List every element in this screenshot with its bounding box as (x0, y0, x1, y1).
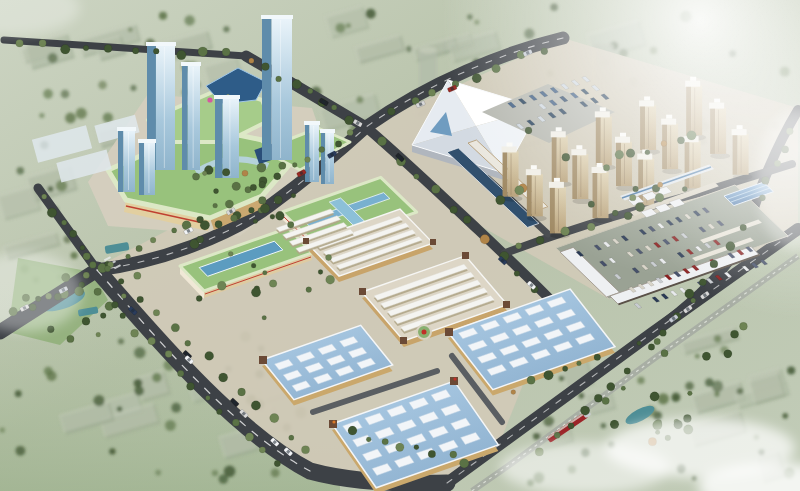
tree (69, 230, 76, 237)
tree (257, 163, 266, 172)
glass-tower-side (139, 142, 144, 195)
tree (687, 391, 692, 396)
tree (89, 261, 96, 268)
tree (251, 401, 260, 410)
glass-tower-cap (138, 139, 156, 143)
tree (259, 181, 266, 188)
glass-tower (188, 65, 200, 170)
tree (527, 376, 535, 384)
tree (100, 313, 106, 319)
context-tree (48, 186, 54, 192)
context-tree (117, 406, 123, 412)
glass-tower-side (118, 130, 123, 192)
context-tree (366, 9, 376, 19)
context-tree (271, 469, 280, 478)
tree (232, 182, 241, 191)
tree (335, 141, 341, 147)
tree (131, 329, 139, 337)
context-tree (43, 89, 53, 99)
tree (292, 163, 297, 168)
tree (150, 237, 156, 243)
tree (654, 338, 660, 344)
tree (562, 366, 567, 371)
tree (126, 254, 131, 259)
tree (232, 419, 239, 426)
context-tree (109, 448, 115, 454)
context-tree (128, 27, 133, 32)
tree (242, 170, 248, 176)
tree (16, 40, 24, 48)
tree (347, 129, 353, 135)
tree (121, 293, 126, 298)
tree (60, 44, 70, 54)
tree (544, 370, 554, 380)
context-tree (165, 420, 176, 431)
tree (594, 354, 601, 361)
tree (568, 423, 574, 429)
context-tree (601, 423, 606, 428)
tree (259, 447, 265, 453)
context-tree (658, 393, 669, 404)
context-tree (787, 366, 795, 374)
tree (112, 301, 119, 308)
tree (205, 396, 210, 401)
tree (308, 88, 313, 93)
tree (318, 270, 323, 275)
context-tree (714, 335, 721, 342)
tree (118, 278, 124, 284)
tree (292, 80, 301, 89)
context-tree (212, 470, 218, 476)
tree (740, 322, 748, 330)
glass-tower-cap (261, 15, 293, 19)
context-tree (223, 26, 229, 32)
tree (274, 196, 282, 204)
context-tree (47, 371, 57, 381)
masterplan-rendering-canvas (0, 0, 800, 491)
aerial-rendering (0, 0, 800, 491)
glass-tower-cap (214, 95, 240, 99)
tree (148, 337, 156, 345)
tree (260, 204, 270, 214)
tree (279, 162, 286, 169)
tree (306, 287, 312, 293)
tree (83, 45, 89, 51)
context-tree (134, 379, 143, 388)
tree (610, 420, 619, 429)
glass-tower (144, 142, 155, 195)
context-tree (685, 382, 694, 391)
tree (82, 317, 90, 325)
context-tree (118, 338, 124, 344)
glass-tower-cap (304, 121, 320, 125)
context-tree (712, 381, 724, 393)
context-tree (356, 96, 363, 103)
context-tree (579, 393, 585, 399)
tree (289, 435, 294, 440)
tree (607, 383, 615, 391)
context-tree (65, 113, 76, 124)
tree (202, 171, 207, 176)
glass-tower-cap (320, 129, 335, 133)
context-tree (695, 354, 700, 359)
context-tree (134, 386, 144, 396)
tree (261, 63, 269, 71)
tree (67, 335, 74, 342)
context-tree (185, 15, 195, 25)
tree (177, 50, 187, 60)
tree (185, 340, 191, 346)
context-tree (559, 376, 564, 381)
tree (238, 388, 246, 396)
tree (120, 313, 126, 319)
tree (249, 207, 255, 213)
glass-tower-cap (146, 42, 176, 46)
tree (702, 352, 710, 360)
tree (270, 413, 279, 422)
glass-tower (156, 45, 175, 170)
glass-tower (272, 18, 292, 160)
context-tree (98, 81, 107, 90)
context-tree (134, 347, 145, 358)
tree (274, 460, 280, 466)
tree (251, 263, 256, 268)
tree (319, 147, 325, 153)
context-tree (17, 167, 24, 174)
context-tree (39, 113, 44, 118)
tree (137, 296, 144, 303)
tree (331, 105, 336, 110)
tree (192, 173, 199, 180)
context-tree (131, 85, 137, 91)
glass-tower (123, 130, 135, 192)
tree (460, 459, 469, 468)
glass-tower-side (262, 18, 272, 160)
tree (153, 309, 160, 316)
tree (554, 432, 560, 438)
tree (387, 107, 395, 115)
tree (270, 214, 275, 219)
tree (650, 392, 659, 401)
tree (345, 116, 354, 125)
tree (231, 215, 238, 222)
tree (39, 40, 46, 47)
context-tree (714, 392, 719, 397)
plaza-red-feature (422, 330, 427, 335)
tree (83, 253, 90, 260)
tree (660, 330, 667, 337)
tree (47, 208, 57, 218)
tree (105, 266, 111, 272)
tree (104, 45, 112, 53)
tree (96, 332, 101, 337)
tree (511, 390, 516, 395)
context-tree (48, 53, 58, 63)
tree (134, 272, 141, 279)
tree (594, 394, 602, 402)
tree (724, 350, 732, 358)
tree (414, 445, 419, 450)
context-tree (406, 46, 412, 52)
tree (637, 341, 642, 346)
tree (215, 221, 222, 228)
central-plaza (417, 325, 431, 339)
tree (276, 76, 282, 82)
tree (196, 295, 202, 301)
tree (301, 446, 309, 454)
glass-tower (309, 124, 319, 182)
context-tree (16, 446, 26, 456)
tree (217, 281, 226, 290)
context-tree (346, 23, 351, 28)
tree (132, 48, 138, 54)
tree (165, 351, 172, 358)
tree (187, 382, 195, 390)
tree (431, 185, 440, 194)
tree (262, 315, 267, 320)
tree (326, 255, 332, 261)
tree (217, 409, 223, 415)
tree (222, 168, 230, 176)
context-tree (15, 390, 22, 397)
tree (213, 189, 218, 194)
tree (253, 219, 258, 224)
tree (219, 373, 228, 382)
glass-tower-cap (117, 127, 136, 131)
context-tree (219, 474, 228, 483)
tree (269, 280, 277, 288)
tree (396, 443, 404, 451)
context-tree (637, 377, 644, 384)
tree (731, 330, 739, 338)
tree (326, 275, 335, 284)
tree (274, 173, 281, 180)
tree (263, 270, 268, 275)
tree (197, 236, 204, 243)
tree (205, 351, 214, 360)
tree (450, 451, 457, 458)
tree (348, 426, 357, 435)
tree (428, 89, 435, 96)
tree (259, 197, 267, 205)
tree (171, 323, 179, 331)
tree (305, 157, 311, 163)
tree (377, 137, 386, 146)
tree (661, 350, 668, 357)
context-tree (61, 90, 70, 99)
context-tree (533, 433, 540, 440)
glass-tower-side (321, 132, 325, 184)
context-tree (155, 470, 161, 476)
context-tree (335, 23, 345, 33)
glass-tower-side (215, 98, 223, 178)
tree (624, 368, 631, 375)
tree (228, 251, 233, 256)
context-tree (71, 252, 78, 259)
tree (136, 245, 142, 251)
context-tree (672, 393, 681, 402)
tree (602, 397, 609, 404)
tree (249, 58, 254, 63)
context-tree (171, 403, 181, 413)
glass-tower-cap (181, 62, 201, 66)
tree (250, 184, 256, 190)
tree (382, 438, 388, 444)
tree (291, 193, 296, 198)
tree (580, 406, 589, 415)
glass-tower (223, 98, 239, 178)
context-tree (737, 388, 743, 394)
context-tree (152, 373, 161, 382)
tree (62, 220, 67, 225)
context-tree (159, 12, 167, 20)
tree (648, 344, 654, 350)
glass-tower-side (182, 65, 188, 170)
context-round-tower-top (419, 47, 437, 54)
tree (83, 272, 89, 278)
tree (94, 288, 102, 296)
tree (177, 370, 183, 376)
tree (577, 361, 582, 366)
context-tree (782, 413, 788, 419)
tree (287, 221, 294, 228)
tree (153, 48, 159, 54)
tree (80, 245, 85, 250)
tree (245, 433, 253, 441)
tree (198, 47, 207, 56)
tree (172, 228, 177, 233)
tree (428, 450, 436, 458)
tree (213, 203, 218, 208)
tree (276, 211, 285, 220)
tree (222, 48, 230, 56)
tree (42, 194, 47, 199)
tree (414, 174, 419, 179)
tree (621, 386, 626, 391)
tree (366, 437, 371, 442)
context-tree (93, 395, 104, 406)
tree (225, 200, 233, 208)
tree (200, 220, 209, 229)
context-tree (76, 108, 87, 119)
tree (251, 288, 260, 297)
